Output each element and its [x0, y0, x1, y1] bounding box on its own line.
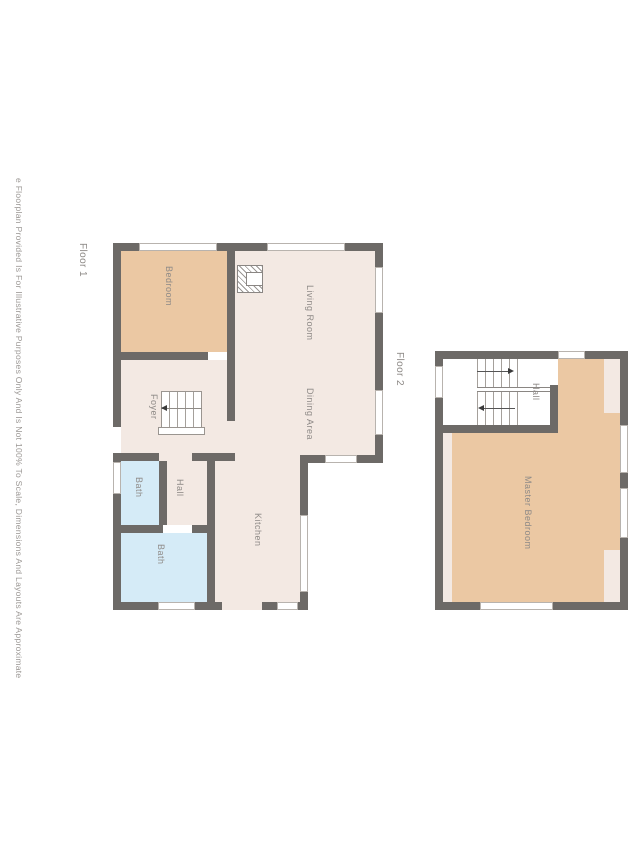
room-label-living-room: Living Room	[305, 285, 315, 341]
stair-arrow-icon	[161, 405, 167, 411]
wall	[435, 398, 443, 610]
window	[375, 390, 383, 435]
wall	[300, 455, 308, 515]
window	[375, 267, 383, 313]
wall	[620, 473, 628, 488]
wall	[159, 461, 167, 527]
window	[620, 425, 628, 473]
room-label-bedroom: Bedroom	[164, 266, 174, 306]
bath-large-floor	[121, 529, 207, 604]
fireplace-firebox	[246, 272, 263, 286]
floor1-title: Floor 1	[77, 243, 88, 277]
wall	[121, 352, 208, 360]
wall	[553, 602, 628, 610]
wall	[192, 525, 215, 533]
window	[267, 243, 345, 251]
window	[558, 351, 585, 359]
wall	[375, 313, 383, 390]
kitchen-opening	[222, 602, 262, 610]
master-bedroom-floor	[452, 433, 558, 602]
room-label-bath-small: Bath	[134, 477, 144, 498]
disclaimer-text: e Floorplan Provided Is For Illustrative…	[14, 178, 24, 678]
window	[113, 462, 121, 494]
window	[620, 488, 628, 538]
room-label-bath-large: Bath	[156, 544, 166, 565]
entry-door-opening	[113, 427, 121, 453]
window	[480, 602, 553, 610]
window	[435, 366, 443, 398]
window	[139, 243, 217, 251]
stair-arrow-up-line	[477, 371, 510, 372]
window	[158, 602, 195, 610]
wall	[298, 602, 308, 610]
wall	[113, 525, 163, 533]
bedroom-floor	[117, 247, 231, 356]
wall	[357, 455, 383, 463]
room-label-hall: Hall	[175, 479, 185, 497]
wall	[262, 602, 277, 610]
bath-door-opening	[163, 525, 192, 533]
wall	[375, 243, 383, 267]
room-label-hall2: Hall	[531, 383, 541, 401]
stair-arrow-up-icon	[508, 368, 514, 374]
wall	[217, 243, 267, 251]
master-bedroom-floor	[558, 359, 604, 602]
wall	[113, 602, 158, 610]
wall	[113, 243, 121, 427]
master-bedroom-floor	[604, 413, 620, 550]
wall	[620, 351, 628, 425]
floor2-title: Floor 2	[394, 352, 405, 386]
stairs-landing	[158, 427, 205, 435]
wall	[435, 602, 480, 610]
wall	[227, 243, 235, 421]
stair-arrow-down-line	[484, 408, 515, 409]
wall	[113, 453, 159, 461]
window	[277, 602, 298, 610]
bedroom-door-opening	[208, 352, 227, 360]
wall	[113, 494, 121, 610]
wall	[620, 538, 628, 610]
floorplan-page: e Floorplan Provided Is For Illustrative…	[0, 0, 640, 853]
wall	[443, 425, 558, 433]
room-label-foyer: Foyer	[149, 394, 159, 420]
wall	[435, 351, 443, 366]
stairs-rail	[161, 408, 202, 409]
wall	[435, 351, 558, 359]
window	[300, 515, 308, 592]
window	[325, 455, 357, 463]
stairs-floor1	[161, 391, 202, 428]
room-label-kitchen: Kitchen	[253, 513, 263, 547]
wall	[550, 385, 558, 433]
stair-arrow-down-icon	[478, 405, 484, 411]
room-label-dining-area: Dining Area	[305, 388, 315, 440]
room-label-master-bedroom: Master Bedroom	[523, 476, 533, 550]
